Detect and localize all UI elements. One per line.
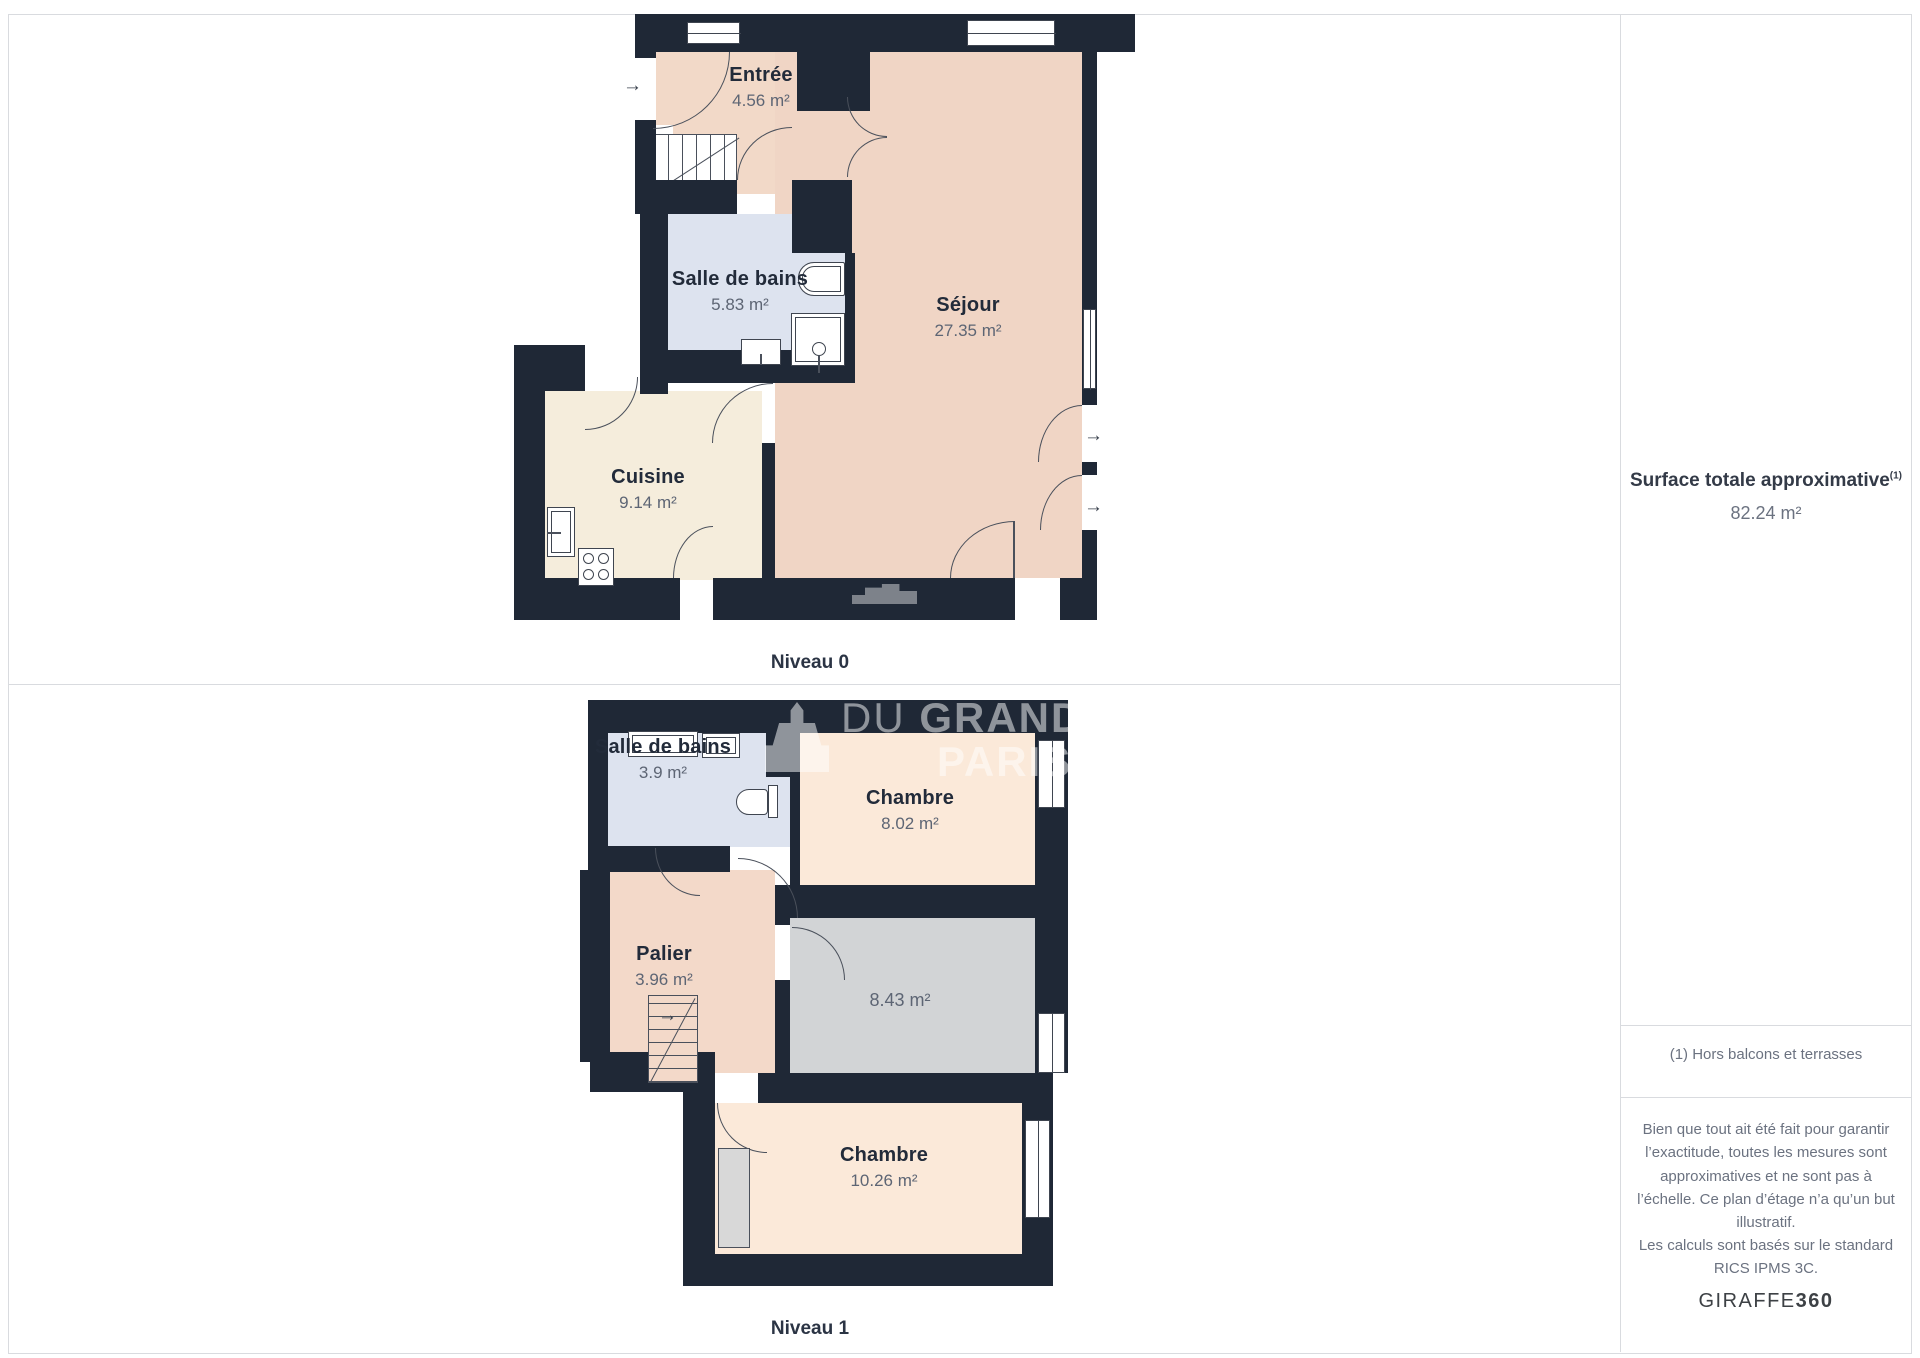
floor-plan-level-0: → → → Entrée 4.56 m² Salle de bains 5.83… — [420, 14, 1140, 664]
door-opening — [775, 925, 790, 980]
stairs-arrow-icon: → — [658, 1006, 677, 1025]
room-area: 8.43 m² — [869, 990, 930, 1011]
room-name: Séjour — [934, 294, 1001, 317]
room-label-cuisine: Cuisine 9.14 m² — [611, 466, 685, 513]
door-leaf — [1013, 521, 1015, 578]
room-label-8-43: 8.43 m² — [869, 986, 930, 1011]
floor-plan-level-1: → DU GRAND PARIS Salle de bains 3.9 m² C… — [560, 690, 1120, 1310]
room-label-chambre-2: Chambre 10.26 m² — [840, 1144, 928, 1191]
window — [1038, 740, 1065, 808]
room-area: 4.56 m² — [729, 91, 792, 111]
shower-stem — [818, 356, 820, 373]
wall — [588, 700, 1068, 733]
door-opening — [1015, 578, 1060, 620]
total-area-title-text: Surface totale approximative — [1630, 470, 1890, 491]
footnote-border-bottom — [1621, 1097, 1912, 1098]
level-1-title: Niveau 1 — [0, 1318, 1620, 1340]
room-name: Cuisine — [611, 466, 685, 489]
entry-arrow-icon: → — [623, 76, 642, 95]
room-name: Palier — [635, 943, 693, 966]
brand-name: GIRAFFE — [1698, 1290, 1795, 1312]
wardrobe — [718, 1148, 750, 1248]
wall — [775, 885, 1035, 918]
kitchen-sink-line — [547, 532, 561, 534]
room-area: 3.96 m² — [635, 970, 693, 990]
wall — [580, 870, 610, 1062]
exit-arrow-icon: → — [1084, 426, 1103, 445]
room-label-sejour: Séjour 27.35 m² — [934, 294, 1001, 341]
shower-head-icon — [812, 342, 826, 356]
room-name: Salle de bains — [672, 268, 808, 291]
window — [687, 22, 740, 44]
door-arc — [738, 858, 798, 918]
window — [1038, 1013, 1065, 1073]
total-area-value: 82.24 m² — [1620, 503, 1912, 524]
exit-arrow-icon: → — [1084, 497, 1103, 516]
door-opening — [713, 1073, 758, 1103]
window — [1025, 1120, 1050, 1218]
room-area: 10.26 m² — [840, 1171, 928, 1191]
room-name: Chambre — [840, 1144, 928, 1167]
level-0-title: Niveau 0 — [0, 652, 1620, 674]
room-area: 3.9 m² — [595, 763, 731, 783]
wall — [766, 733, 800, 777]
room-area: 5.83 m² — [672, 295, 808, 315]
wall — [790, 777, 800, 895]
wall — [792, 180, 852, 253]
room-area: 27.35 m² — [934, 321, 1001, 341]
wall — [514, 345, 585, 391]
room-area: 9.14 m² — [611, 493, 685, 513]
footnote-marker: (1) — [1890, 471, 1902, 482]
room-label-chambre-1: Chambre 8.02 m² — [866, 787, 954, 834]
giraffe360-logo: GIRAFFE360 — [1620, 1290, 1912, 1313]
room-area: 8.02 m² — [866, 814, 954, 834]
room-label-entree: Entrée 4.56 m² — [729, 64, 792, 111]
room-name: Chambre — [866, 787, 954, 810]
toilet-icon — [736, 789, 768, 815]
room-label-salle-de-bains-1: Salle de bains 3.9 m² — [595, 736, 731, 783]
window — [1083, 309, 1096, 389]
room-name: Salle de bains — [595, 736, 731, 759]
brand-suffix: 360 — [1796, 1290, 1834, 1312]
stove-icon — [578, 548, 614, 586]
room-name: Entrée — [729, 64, 792, 87]
footnote-border-top — [1621, 1025, 1912, 1026]
room-label-palier: Palier 3.96 m² — [635, 943, 693, 990]
wall — [713, 1073, 1035, 1103]
disclaimer-paragraph-2: Les calculs sont basés sur le standard R… — [1636, 1234, 1896, 1281]
total-area-title: Surface totale approximative(1) — [1620, 470, 1912, 492]
sink-line — [760, 354, 762, 365]
section-divider — [8, 684, 1620, 685]
window — [967, 20, 1055, 46]
panel-divider — [1620, 14, 1621, 1352]
footnote-text: (1) Hors balcons et terrasses — [1620, 1046, 1912, 1063]
room-label-salle-de-bains: Salle de bains 5.83 m² — [672, 268, 808, 315]
toilet-tank — [768, 785, 778, 818]
disclaimer-paragraph-1: Bien que tout ait été fait pour garantir… — [1636, 1118, 1896, 1234]
wall — [683, 1254, 1053, 1286]
